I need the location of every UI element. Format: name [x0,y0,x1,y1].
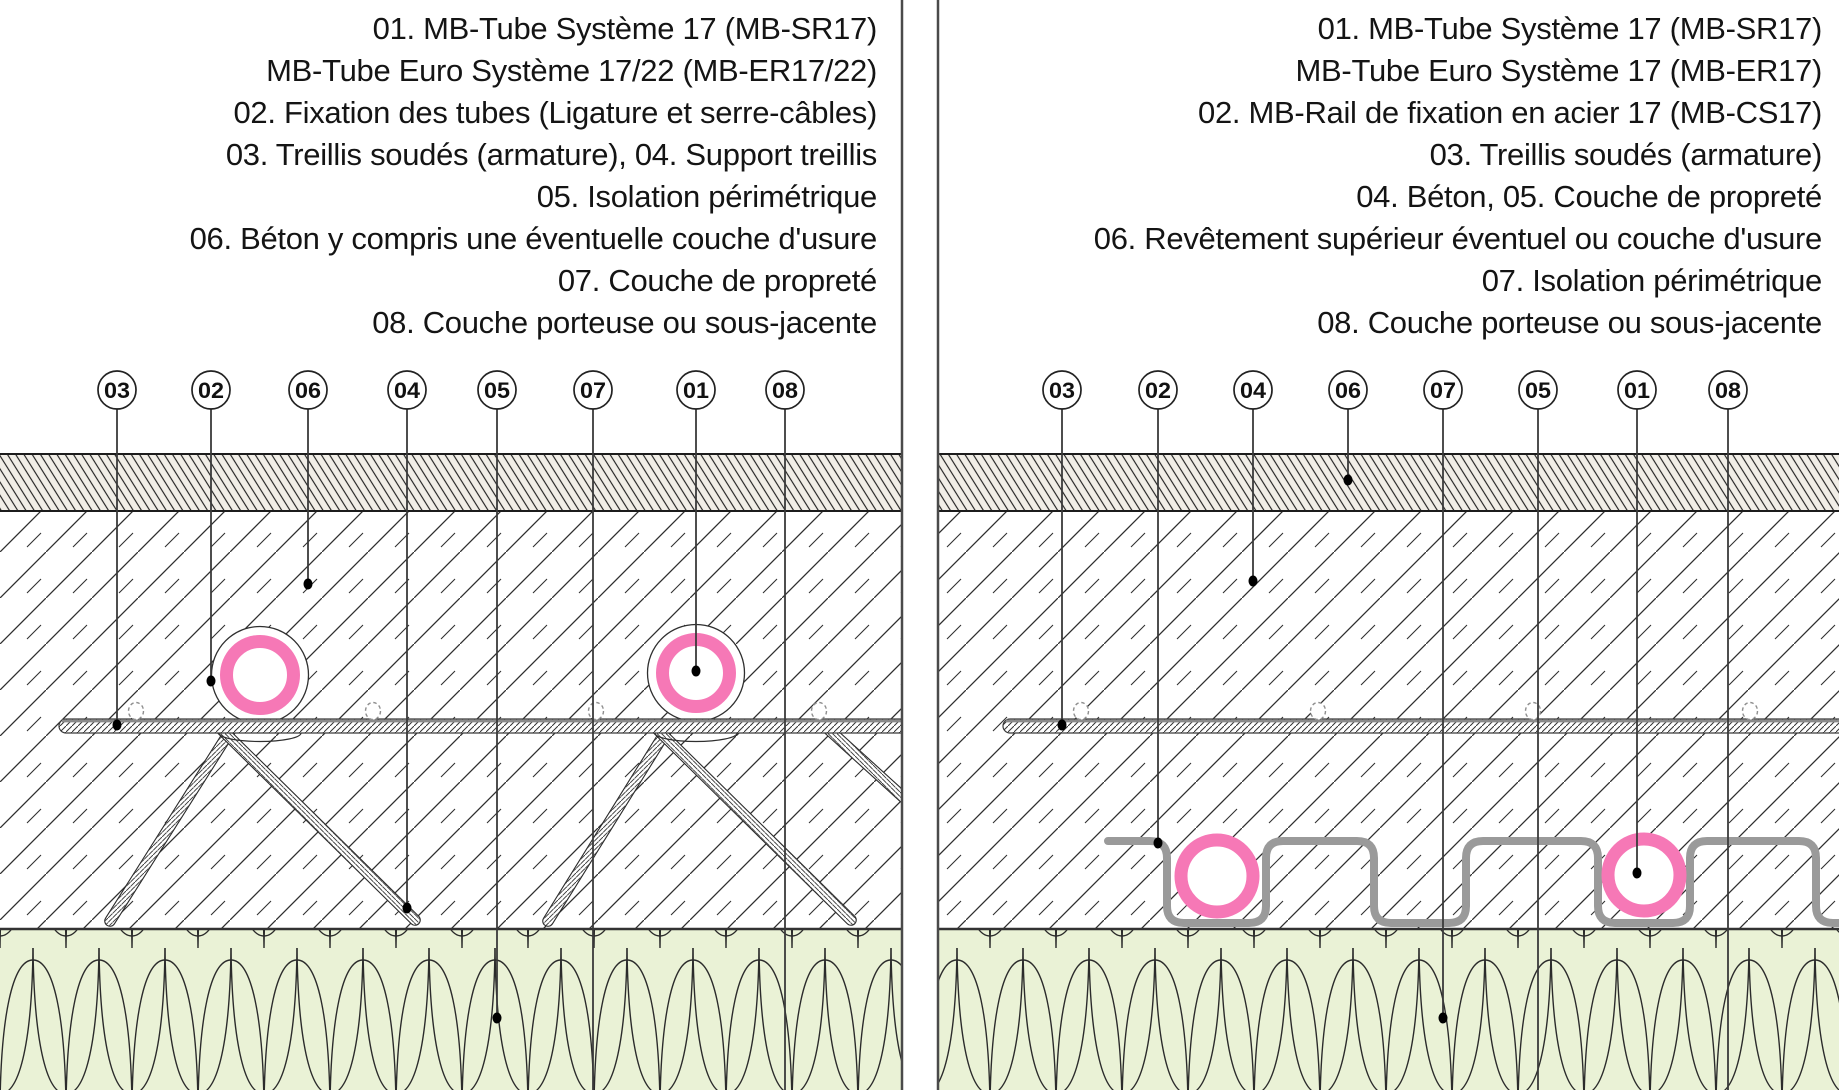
leader-dot [1344,475,1353,486]
heating-tube [1181,840,1253,912]
welded-mesh-bar-left [59,719,910,733]
insulation-hatch-left [0,929,902,1090]
heating-tube [1608,839,1680,911]
legend-line: 05. Isolation périmétrique [190,176,877,218]
leader-dot [304,579,313,590]
cable-clamp [1311,703,1326,720]
legend-line: 08. Couche porteuse ou sous-jacente [190,302,877,344]
callout-number: 01 [683,378,709,403]
welded-mesh-bar-right [1003,719,1839,733]
leader-dot [692,666,701,677]
legend-line: 02. Fixation des tubes (Ligature et serr… [190,92,877,134]
legend-line: MB-Tube Euro Système 17 (MB-ER17) [1094,50,1822,92]
legend-line: 06. Béton y compris une éventuelle couch… [190,218,877,260]
panel-left-section [0,454,910,1090]
legend-left: 01. MB-Tube Système 17 (MB-SR17) MB-Tube… [190,8,877,344]
callout-number: 03 [104,378,130,403]
leader-dot [207,676,216,687]
legend-line: 08. Couche porteuse ou sous-jacente [1094,302,1822,344]
callout-number: 02 [198,378,224,403]
legend-line: 03. Treillis soudés (armature) [1094,134,1822,176]
legend-right: 01. MB-Tube Système 17 (MB-SR17) MB-Tube… [1094,8,1822,344]
legend-line: 07. Couche de propreté [190,260,877,302]
callout-number: 06 [1335,378,1361,403]
legend-line: 07. Isolation périmétrique [1094,260,1822,302]
leader-dot [1633,868,1642,879]
insulation-hatch-right [938,929,1839,1090]
leader-dot [1439,1013,1448,1024]
leader-dot [1154,838,1163,849]
cable-clamp [1743,703,1758,720]
cable-clamp [129,703,144,720]
cable-clamp [589,703,604,720]
legend-line: 02. MB-Rail de fixation en acier 17 (MB-… [1094,92,1822,134]
leader-dot [1058,720,1067,731]
technical-diagram: 0302060405070108 0302040607050108 01. MB… [0,0,1839,1090]
leader-dot [493,1013,502,1024]
callout-number: 07 [1430,378,1456,403]
callout-number: 01 [1624,378,1650,403]
legend-line: 01. MB-Tube Système 17 (MB-SR17) [1094,8,1822,50]
wear-band-hatch-right [938,454,1839,511]
heating-tube [227,642,294,709]
callout-number: 02 [1145,378,1171,403]
cable-clamp [1074,703,1089,720]
legend-line: 04. Béton, 05. Couche de propreté [1094,176,1822,218]
cable-clamp [366,703,381,720]
callout-number: 04 [394,378,421,403]
callout-number: 03 [1049,378,1075,403]
legend-line: 01. MB-Tube Système 17 (MB-SR17) [190,8,877,50]
panel-right-section [938,454,1839,1090]
callout-number: 06 [295,378,321,403]
callout-number: 08 [772,378,798,403]
leader-dot [403,903,412,914]
legend-line: 06. Revêtement supérieur éventuel ou cou… [1094,218,1822,260]
callout-number: 07 [580,378,606,403]
legend-line: 03. Treillis soudés (armature), 04. Supp… [190,134,877,176]
wear-band-hatch-left [0,454,902,511]
legend-line: MB-Tube Euro Système 17/22 (MB-ER17/22) [190,50,877,92]
callout-number: 05 [484,378,510,403]
leader-dot [1249,576,1258,587]
callout-number: 05 [1525,378,1551,403]
leader-dot [113,720,122,731]
callout-number: 04 [1240,378,1267,403]
cable-clamp [812,703,827,720]
callout-number: 08 [1715,378,1741,403]
